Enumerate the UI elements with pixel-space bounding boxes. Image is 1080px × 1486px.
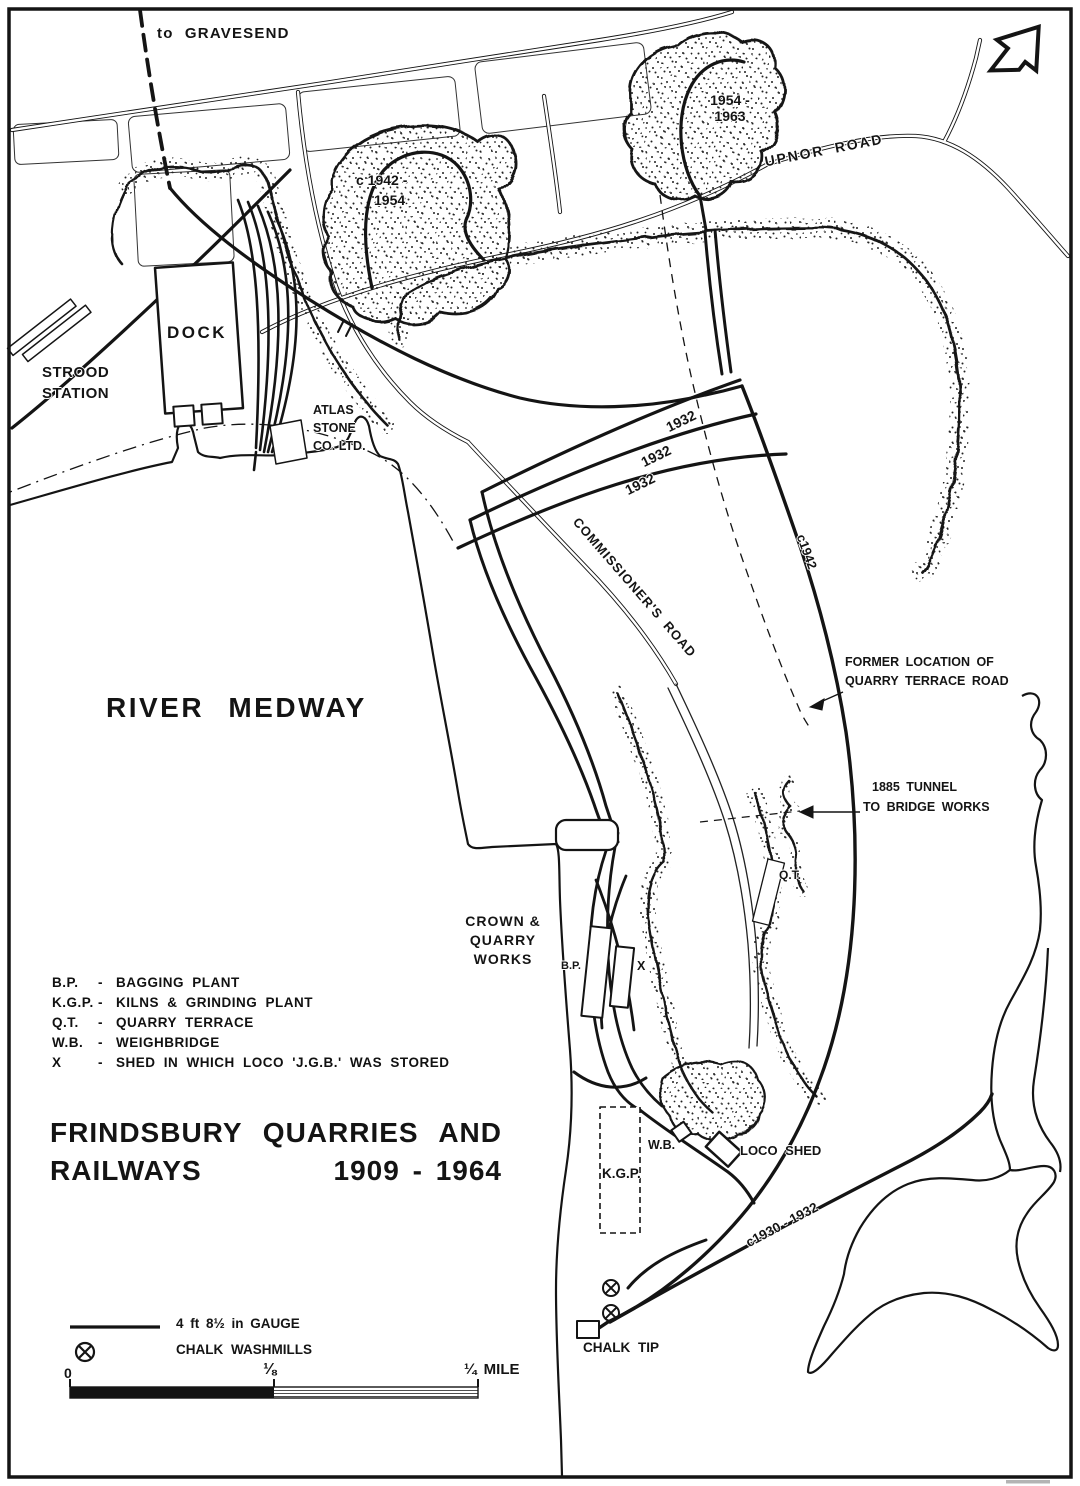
label-quarry-1942-1954: c 1942 - 1954: [356, 170, 407, 210]
label-river-medway: RIVER MEDWAY: [106, 692, 367, 724]
label-washmills: CHALK WASHMILLS: [176, 1342, 312, 1358]
former-road-arrowhead: [810, 699, 824, 710]
chalk-tip-structure: [577, 1321, 599, 1338]
east-creek-right-bank: [1033, 948, 1061, 1172]
east-channel-shore: [991, 693, 1046, 1170]
map-title: FRINDSBURY QUARRIES AND RAILWAYS 1909 - …: [50, 1114, 502, 1190]
legend-abbr: X: [52, 1055, 98, 1070]
label-qt: Q.T.: [779, 869, 801, 883]
margin-smudge: [1006, 1480, 1050, 1484]
quarry-date-line: c 1942 -: [356, 170, 407, 190]
label-x-shed: X: [637, 959, 645, 973]
scale-tick-eighth: ⅛: [263, 1361, 276, 1379]
legend-row-wb: W.B. - WEIGHBRIDGE: [52, 1035, 220, 1050]
annotation-arrows: [800, 692, 860, 818]
valley-west-cliff: [618, 694, 712, 1112]
legend-abbr: B.P.: [52, 975, 98, 990]
legend-abbr: K.G.P.: [52, 995, 98, 1010]
annotation-line: QUARRY TERRACE ROAD: [845, 672, 1009, 691]
atlas-label-line: ATLAS: [313, 401, 366, 419]
scale-tick-0: 0: [64, 1365, 72, 1381]
quarry-1954-1963-outline: [624, 33, 785, 200]
works-label-line: QUARRY: [465, 931, 540, 950]
map-title-line1: FRINDSBURY QUARRIES AND: [50, 1114, 502, 1152]
legend-desc: KILNS & GRINDING PLANT: [116, 995, 313, 1010]
label-wb: W.B.: [648, 1138, 675, 1152]
legend-sep: -: [98, 975, 116, 990]
legend-desc: WEIGHBRIDGE: [116, 1035, 220, 1050]
atlas-stone-building: [270, 420, 307, 464]
label-strood-station: STROOD STATION: [42, 362, 109, 404]
jetty: [556, 820, 618, 850]
scale-bar: [70, 1379, 478, 1398]
quarry-cliffs: [112, 33, 960, 1140]
map-title-line2-right: 1909 - 1964: [334, 1152, 502, 1190]
atlas-label-line: STONE: [313, 419, 366, 437]
legend-row-bp: B.P. - BAGGING PLANT: [52, 975, 240, 990]
label-gauge: 4 ft 8½ in GAUGE: [176, 1316, 300, 1332]
label-dock: DOCK: [167, 323, 227, 343]
label-tunnel-line2: TO BRIDGE WORKS: [863, 800, 990, 814]
legend-row-kgp: K.G.P. - KILNS & GRINDING PLANT: [52, 995, 313, 1010]
works-label-line: CROWN &: [465, 912, 540, 931]
legend-row-x: X - SHED IN WHICH LOCO 'J.G.B.' WAS STOR…: [52, 1055, 449, 1070]
quarry-date-line: 1954: [356, 190, 407, 210]
frindsbury-quarries-map: to GRAVESEND 1954 - 1963 UPNOR ROAD c 19…: [0, 0, 1080, 1486]
legend-sep: -: [98, 1055, 116, 1070]
legend-desc: BAGGING PLANT: [116, 975, 240, 990]
label-crown-quarry-works: CROWN & QUARRY WORKS: [465, 912, 540, 969]
legend-abbr: W.B.: [52, 1035, 98, 1050]
tunnel-arrowhead: [800, 806, 813, 818]
boundary-dashed: [10, 424, 455, 545]
tidal-pond: [808, 1166, 1058, 1373]
legend-row-qt: Q.T. - QUARRY TERRACE: [52, 1015, 254, 1030]
quarry-terrace-road-line: [676, 684, 758, 1046]
label-to-gravesend: to GRAVESEND: [157, 25, 290, 42]
legend-desc: QUARRY TERRACE: [116, 1015, 254, 1030]
label-loco-shed: LOCO SHED: [740, 1144, 821, 1159]
legend-desc: SHED IN WHICH LOCO 'J.G.B.' WAS STORED: [116, 1055, 449, 1070]
label-atlas-stone: ATLAS STONE CO. LTD.: [313, 401, 366, 455]
chalk-washmill-symbols: [603, 1280, 619, 1321]
scale-tick-quarter: ¼ MILE: [464, 1361, 520, 1378]
quarry-date-line: 1954 -: [710, 92, 750, 108]
annotation-line: FORMER LOCATION OF: [845, 653, 1009, 672]
map-title-line2-left: RAILWAYS: [50, 1152, 202, 1190]
label-tunnel-line1: 1885 TUNNEL: [872, 780, 957, 794]
legend-abbr: Q.T.: [52, 1015, 98, 1030]
legend-sep: -: [98, 995, 116, 1010]
works-label-line: WORKS: [465, 950, 540, 969]
strood-station-platforms: [7, 294, 91, 366]
quarry-date-line: 1963: [710, 108, 750, 124]
label-bp: B.P.: [561, 960, 581, 973]
north-arrow-icon: [980, 11, 1059, 92]
map-linework: [0, 0, 1080, 1486]
label-quarry-1954-1963: 1954 - 1963: [710, 92, 750, 124]
legend-sep: -: [98, 1035, 116, 1050]
washmill-legend-symbol: [76, 1343, 94, 1361]
legend-sep: -: [98, 1015, 116, 1030]
bagging-plant-building: [581, 926, 611, 1018]
station-label-line: STATION: [42, 383, 109, 404]
station-label-line: STROOD: [42, 362, 109, 383]
atlas-label-line: CO. LTD.: [313, 437, 366, 455]
label-kgp: K.G.P.: [602, 1166, 641, 1182]
label-chalk-tip: CHALK TIP: [583, 1340, 659, 1356]
label-former-location: FORMER LOCATION OF QUARRY TERRACE ROAD: [845, 653, 1009, 691]
